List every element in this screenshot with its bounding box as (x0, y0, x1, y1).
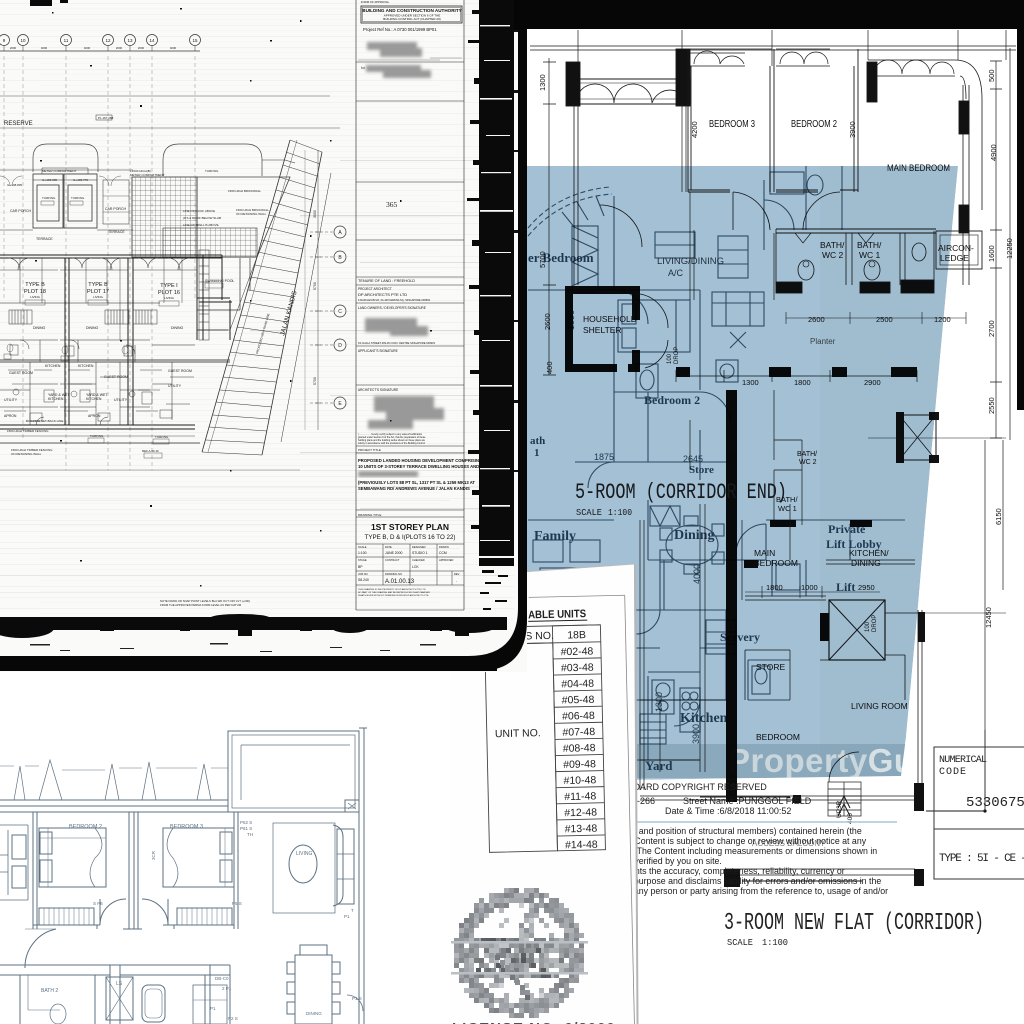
svg-text:3000: 3000 (313, 210, 317, 218)
svg-text:LIVING: LIVING (296, 851, 313, 857)
svg-text:C: C (338, 309, 342, 315)
svg-text:4000: 4000 (170, 46, 177, 50)
svg-text:CCM: CCM (439, 551, 447, 555)
svg-text:5700: 5700 (313, 377, 317, 385)
svg-text:TYPE B, D & I(PLOTS 16 TO: TYPE B, D & I(PLOTS 16 TO 22) (365, 534, 456, 541)
svg-text:CAR PORCH: CAR PORCH (105, 207, 126, 211)
svg-text:KITCHEN: KITCHEN (48, 397, 64, 401)
svg-text:STAGE: STAGE (358, 558, 367, 562)
svg-text:(PREVIOUSLY LOTS 88 PT SL, 13: (PREVIOUSLY LOTS 88 PT SL, 1317 PT SL & … (358, 480, 475, 485)
svg-text:1ST STOREY PLAN: 1ST STOREY PLAN (371, 522, 449, 532)
svg-text:TYPE I: TYPE I (160, 283, 178, 289)
svg-text:A.01.00.13: A.01.00.13 (385, 579, 415, 585)
svg-text:PROJECT ARCHITECT: PROJECT ARCHITECT (358, 287, 392, 291)
svg-text:REF.A.66.1F: REF.A.66.1F (142, 449, 159, 453)
svg-text:UTILITY: UTILITY (114, 398, 128, 402)
svg-text:LIVING: LIVING (93, 295, 104, 299)
svg-text:ON RETAINING WALL: ON RETAINING WALL (236, 212, 267, 216)
svg-text:IL+106.635: IL+106.635 (42, 178, 57, 182)
svg-text:ON RETAINING WALL: ON RETAINING WALL (11, 452, 42, 456)
svg-text:JOB NO.: JOB NO. (358, 572, 369, 576)
svg-text:SCALE: SCALE (358, 545, 367, 549)
svg-text:(P.S & ROOF BELOW SLAB: (P.S & ROOF BELOW SLAB (183, 216, 221, 220)
svg-text:DRAWING TITLE: DRAWING TITLE (358, 513, 381, 517)
svg-text:DINING: DINING (306, 1011, 322, 1016)
svg-text:Project Ref No.: A 0730 001/: Project Ref No.: A 0730 001/1999 BP01 (363, 27, 437, 32)
svg-text:TURFING: TURFING (42, 196, 56, 200)
svg-text:APPROVED: APPROVED (439, 558, 454, 562)
svg-text:TENURE OF LAND : FREEHOLD: TENURE OF LAND : FREEHOLD (358, 279, 415, 283)
svg-text:LINE OF TRELLIS ABOVE: LINE OF TRELLIS ABOVE (183, 223, 219, 227)
svg-text:12: 12 (105, 38, 111, 43)
svg-text:2000: 2000 (116, 46, 123, 50)
svg-text:TURFING: TURFING (71, 196, 85, 200)
svg-text:TYPE B: TYPE B (88, 282, 108, 288)
svg-text:DESIGNED: DESIGNED (412, 545, 426, 549)
svg-text:strictly in accordance with th: strictly in accordance with the provisio… (358, 442, 425, 445)
svg-text:D: D (338, 343, 342, 349)
svg-text:METER COMPARTMENT: METER COMPARTMENT (130, 173, 165, 177)
svg-text:REV.: REV. (454, 572, 460, 576)
svg-text:LCK: LCK (412, 565, 419, 569)
svg-text:APRON: APRON (88, 414, 101, 418)
svg-text:DINING: DINING (86, 326, 99, 330)
svg-text:KITCHEN: KITCHEN (78, 364, 94, 368)
svg-text:STUDIO 1: STUDIO 1 (412, 551, 428, 555)
svg-text:RESERVE: RESERVE (4, 121, 33, 127)
svg-text:P1: P1 (210, 1006, 216, 1011)
svg-text:5700: 5700 (313, 282, 317, 290)
svg-text:1500 HIGH TIMBER FENCING: 1500 HIGH TIMBER FENCING (7, 429, 49, 433)
svg-text:4000: 4000 (41, 46, 48, 50)
svg-text:JUNE 2000: JUNE 2000 (385, 551, 402, 555)
svg-text:UTILITY: UTILITY (4, 398, 18, 402)
svg-text:PL 167.288: PL 167.288 (98, 116, 114, 120)
svg-text:APRON: APRON (4, 414, 17, 418)
svg-text:DRAWN: DRAWN (439, 545, 449, 549)
svg-text:DATE: DATE (385, 545, 392, 549)
svg-text:2000: 2000 (138, 46, 145, 50)
svg-text:NO PART OF THE DRAWING MAY BE: NO PART OF THE DRAWING MAY BE REPRODUCED… (358, 591, 430, 594)
svg-text:THIS DRAWING IS THE PROPERTY O: THIS DRAWING IS THE PROPERTY OF DP ARCHI… (358, 588, 426, 591)
svg-text:T: T (351, 908, 354, 913)
svg-text:FROM THE APPROVED PERMA FORM L: FROM THE APPROVED PERMA FORM LEVEL AS PE… (160, 603, 242, 607)
svg-text:LAND OWNERS / DEVELOPER'S SIGN: LAND OWNERS / DEVELOPER'S SIGNATURE (358, 306, 426, 310)
svg-text:P2 S: P2 S (228, 1016, 238, 1021)
svg-text:S P6: S P6 (93, 901, 103, 906)
svg-text:TURFING: TURFING (155, 435, 169, 439)
svg-text:TERRACE: TERRACE (36, 237, 53, 241)
svg-text:10: 10 (20, 38, 26, 43)
svg-text:KITCHEN: KITCHEN (86, 397, 102, 401)
svg-text:CHECKED: CHECKED (412, 558, 425, 562)
svg-text:PROPOSED LANDED HOUSING DEV: PROPOSED LANDED HOUSING DEVELOPMENT COMP… (358, 458, 482, 463)
svg-text:BEDROOM 2: BEDROOM 2 (69, 824, 102, 830)
svg-text:63 CHALA STREET #09-00 CCDC CE: 63 CHALA STREET #09-00 CCDC CENTRE SINGA… (358, 341, 435, 345)
svg-text:365: 365 (386, 200, 398, 209)
svg-text:13: 13 (127, 38, 133, 43)
svg-text:1:100: 1:100 (358, 551, 367, 555)
svg-text:IL+108.835: IL+108.835 (7, 183, 22, 187)
svg-text:METER COMPARTMENT: METER COMPARTMENT (42, 169, 77, 173)
svg-text:SWIMMING POOL: SWIMMING POOL (205, 279, 234, 283)
svg-text:KITCHEN: KITCHEN (45, 364, 61, 368)
svg-text:FORM OF APPROVAL: FORM OF APPROVAL (361, 0, 390, 4)
svg-text:10 UNITS OF 3-STOREY TERRACE: 10 UNITS OF 3-STOREY TERRACE DWELLING HO… (358, 464, 479, 469)
svg-text:6 RAFFLES BLVD, 04-100 MARINA: 6 RAFFLES BLVD, 04-100 MARINA SQ, SINGAP… (358, 298, 431, 302)
svg-text:P1 S: P1 S (352, 996, 362, 1001)
svg-text:2 P1: 2 P1 (222, 986, 232, 991)
svg-text:BUILDING CONTROL ACT (CHAPTER: BUILDING CONTROL ACT (CHAPTER 29) (383, 17, 441, 21)
svg-text:PROJECT TITLE: PROJECT TITLE (358, 448, 381, 452)
svg-text:APPLICANT'S SIGNATURE: APPLICANT'S SIGNATURE (358, 349, 398, 353)
svg-text:P61 S: P61 S (240, 826, 252, 831)
svg-text:LINE OF ROOF ABOVE: LINE OF ROOF ABOVE (183, 209, 215, 213)
svg-text:CONTRACT: CONTRACT (385, 558, 400, 562)
svg-text:1500 HIGH BRICKWALL: 1500 HIGH BRICKWALL (228, 189, 261, 193)
svg-text:DINING: DINING (171, 326, 184, 330)
svg-text:DRAWING NO.: DRAWING NO. (385, 572, 403, 576)
svg-text:UTILITY: UTILITY (168, 384, 182, 388)
svg-text:IL+106.770: IL+106.770 (73, 178, 88, 182)
svg-text:LIVING: LIVING (30, 295, 41, 299)
svg-text:DINING: DINING (33, 326, 46, 330)
svg-text:P1: P1 (344, 914, 350, 919)
svg-text:ARCHITECT'S SIGNATURE: ARCHITECT'S SIGNATURE (358, 388, 398, 392)
svg-text:BUILDING AND CONSTRUCTION AUTH: BUILDING AND CONSTRUCTION AUTHORITY (362, 8, 461, 13)
svg-text:BEDROOM 3: BEDROOM 3 (170, 824, 203, 830)
svg-text:BATH 2: BATH 2 (41, 988, 58, 994)
svg-text:P62 S: P62 S (240, 820, 252, 825)
svg-text:4000: 4000 (84, 46, 91, 50)
svg-text:S8.240: S8.240 (358, 578, 369, 582)
svg-text:TURFING: TURFING (205, 169, 219, 173)
svg-text:TERRACE: TERRACE (108, 230, 125, 234)
svg-text:-: - (456, 579, 457, 583)
svg-text:BP: BP (358, 565, 363, 569)
svg-text:LS: LS (116, 981, 123, 987)
svg-text:DB-C0: DB-C0 (215, 976, 229, 981)
svg-text:3CR: 3CR (151, 850, 156, 860)
svg-text:2000: 2000 (10, 46, 17, 50)
svg-text:GUEST ROOM: GUEST ROOM (168, 369, 192, 373)
svg-text:LIVING: LIVING (164, 296, 175, 300)
svg-text:SEMBAWANG RD/ ANDREWS AVENUE /: SEMBAWANG RD/ ANDREWS AVENUE / JALAN KAN… (358, 486, 470, 491)
svg-text:DP ARCHITECTS PTE LTD: DP ARCHITECTS PTE LTD (358, 292, 407, 297)
svg-text:14: 14 (149, 38, 155, 43)
svg-text:11: 11 (64, 38, 69, 43)
svg-text:TH: TH (247, 832, 253, 837)
svg-text:15: 15 (192, 38, 198, 43)
svg-text:WHATSOEVER WITHOUT PERMISSION: WHATSOEVER WITHOUT PERMISSION FROM DP AR… (358, 594, 429, 597)
svg-text:P5 S: P5 S (232, 901, 242, 906)
svg-text:GUEST ROOM: GUEST ROOM (9, 371, 33, 375)
svg-text:CAR PORCH: CAR PORCH (10, 209, 31, 213)
